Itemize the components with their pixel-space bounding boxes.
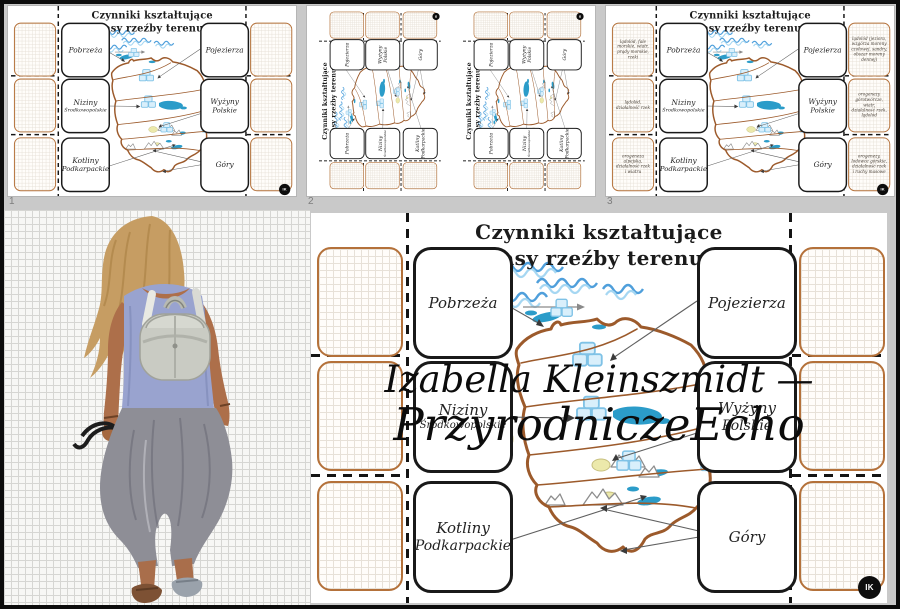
- label-text: Wyżyny: [718, 399, 776, 418]
- cut-line-horizontal: [792, 474, 887, 477]
- answer-text: orogenezy górotwórcze, wiatr, działalnoś…: [849, 90, 889, 120]
- answer-card-left-3: orogeneza alpejska, działalność rzek i w…: [317, 481, 403, 591]
- poland-border: [352, 64, 425, 126]
- label-text: Środkowopolskie: [384, 130, 388, 157]
- answer-card-left-1: lądolód, fale morskie, wiatr, prądy mors…: [330, 162, 364, 189]
- answer-card-left-1: lądolód, fale morskie, wiatr, prądy mors…: [474, 162, 508, 189]
- label-text: Pobrzeża: [488, 133, 494, 155]
- slide-thumbnail-1[interactable]: Czynniki kształtujące pasy rzeźby terenu…: [8, 6, 296, 196]
- poland-border: [112, 58, 210, 172]
- label-text: Pobrzeża: [69, 46, 103, 55]
- cut-line-horizontal: [247, 134, 294, 135]
- cut-line-horizontal: [311, 474, 406, 477]
- ik-logo-badge: IK: [858, 576, 881, 599]
- label-text: Polskie: [212, 106, 237, 115]
- answer-card-left-1: lądolód, fale morskie, wiatr, prądy mors…: [14, 23, 56, 77]
- label-text: Środkowopolskie: [64, 107, 106, 113]
- label-text: Pojezierza: [708, 294, 786, 313]
- label-text: Polskie: [722, 418, 772, 436]
- answer-card-right-2: orogenezy górotwórcze, wiatr, działalnoś…: [848, 79, 890, 133]
- label-text: Środkowopolskie: [528, 130, 532, 157]
- ik-logo-badge: IK: [279, 184, 290, 195]
- worksheet-title-line1: Czynniki kształtujące: [668, 9, 833, 22]
- label-box-gory: Góry: [547, 39, 582, 70]
- answer-text: lądolód, działalność rzek: [613, 98, 653, 112]
- label-text: Polskie: [527, 47, 532, 63]
- label-text: Pobrzeża: [344, 133, 350, 155]
- slide-number-1: 1: [9, 196, 15, 207]
- screenshot-frame: Czynniki kształtujące pasy rzeźby terenu…: [0, 0, 900, 609]
- label-box-wyzyny: Wyżyny Polskie: [798, 79, 847, 134]
- rotated-worksheet-copy-2: Czynniki kształtujące pasy rzeźby terenu…: [463, 11, 585, 191]
- worksheet-title-line1: Czynniki kształtujące: [465, 49, 473, 154]
- label-box-pobrzeza: Pobrzeża: [474, 128, 509, 159]
- answer-card-left-2: lądolód, działalność rzek: [317, 361, 403, 471]
- label-text: Środkowopolskie: [662, 107, 704, 113]
- label-box-pojezierza: Pojezierza: [200, 23, 249, 78]
- answer-card-left-2: lądolód, działalność rzek: [509, 162, 543, 189]
- sea-current-arrowhead: [739, 50, 743, 53]
- harem-pants: [100, 408, 232, 568]
- label-text: Kotliny: [72, 156, 98, 165]
- label-box-pobrzeza: Pobrzeża: [61, 23, 110, 78]
- ik-logo-text: IK: [435, 15, 438, 18]
- answer-text: orogeneza alpejska, działalność rzek i w…: [613, 152, 653, 177]
- woman-with-backpack-photo: [4, 210, 310, 605]
- answer-card-left-2: lądolód, działalność rzek: [14, 79, 56, 133]
- label-box-pojezierza: Pojezierza: [798, 23, 847, 78]
- label-text: Góry: [561, 49, 567, 60]
- lowland-icon: [497, 428, 617, 502]
- label-box-niziny: Niziny Środkowopolskie: [659, 79, 708, 134]
- poland-border: [496, 64, 569, 126]
- cut-line-horizontal: [401, 11, 402, 41]
- cut-line-horizontal: [11, 134, 58, 135]
- label-box-pobrzeza: Pobrzeża: [659, 23, 708, 78]
- sea-current-arrowhead: [577, 304, 585, 311]
- answer-card-left-1: lądolód, fale morskie, wiatr, prądy mors…: [317, 247, 403, 357]
- label-text: Kotliny: [436, 519, 490, 538]
- label-text: Pojezierza: [488, 43, 494, 67]
- label-box-kotliny: Kotliny Podkarpackie: [403, 128, 438, 159]
- cut-line-vertical-left: [463, 160, 585, 161]
- label-text: Podkarpackie: [660, 165, 707, 174]
- poland-border: [516, 319, 716, 552]
- cut-line-horizontal: [545, 161, 546, 191]
- answer-card-right-3: orogenezy, lodowce górskie, działalność …: [799, 481, 885, 591]
- answer-card-right-1: lądolód (jeziora, wzgórza moreny czołowe…: [799, 247, 885, 357]
- cut-line-horizontal: [609, 134, 656, 135]
- worksheet-page: Czynniki kształtujące pasy rzeźby terenu…: [319, 11, 441, 191]
- cut-line-vertical-left: [406, 213, 409, 603]
- label-box-kotliny: Kotliny Podkarpackie: [413, 481, 513, 593]
- label-box-wyzyny: Wyżyny Polskie: [200, 79, 249, 134]
- label-box-pobrzeza: Pobrzeża: [330, 128, 365, 159]
- label-box-wyzyny: Wyżyny Polskie: [365, 39, 400, 70]
- answer-card-left-2: lądolód, działalność rzek: [365, 162, 399, 189]
- cut-line-horizontal: [401, 161, 402, 191]
- label-box-kotliny: Kotliny Podkarpackie: [547, 128, 582, 159]
- label-box-pojezierza: Pojezierza: [330, 39, 365, 70]
- answer-card-right-2: orogenezy górotwórcze, wiatr, działalnoś…: [799, 361, 885, 471]
- label-box-kotliny: Kotliny Podkarpackie: [659, 137, 708, 192]
- label-text: Podkarpackie: [420, 128, 425, 158]
- cut-line-horizontal: [545, 11, 546, 41]
- author-photo-panel: [4, 210, 310, 605]
- slide-thumbnail-3[interactable]: Czynniki kształtujące pasy rzeźby terenu…: [606, 6, 894, 196]
- label-box-gory: Góry: [697, 481, 797, 593]
- label-box-niziny: Niziny Środkowopolskie: [365, 128, 400, 159]
- label-text: Pojezierza: [344, 43, 350, 67]
- ik-logo-badge: IK: [432, 13, 439, 20]
- ik-logo-badge: IK: [877, 184, 888, 195]
- label-box-pojezierza: Pojezierza: [474, 39, 509, 70]
- preview-background: Czynniki kształtujące pasy rzeźby terenu…: [4, 4, 896, 605]
- answer-card-right-2: orogenezy górotwórcze, wiatr, działalnoś…: [509, 12, 543, 39]
- worksheet-title-line1: Czynniki kształtujące: [321, 49, 329, 154]
- main-slide-preview[interactable]: Czynniki kształtujące pasy rzeźby terenu…: [311, 213, 887, 603]
- label-text: Niziny: [74, 98, 98, 107]
- answer-card-right-1: lądolód (jeziora, wzgórza moreny czołowe…: [848, 23, 890, 77]
- label-text: Wyżyny: [808, 97, 836, 106]
- label-box-wyzyny: Wyżyny Polskie: [697, 361, 797, 473]
- worksheet-title-line1: Czynniki kształtujące: [431, 219, 767, 245]
- slide-number-2: 2: [308, 196, 314, 207]
- label-box-gory: Góry: [403, 39, 438, 70]
- label-box-wyzyny: Wyżyny Polskie: [509, 39, 544, 70]
- slide-thumbnail-2[interactable]: Czynniki kształtujące pasy rzeźby terenu…: [307, 6, 595, 196]
- cut-line-horizontal: [845, 134, 892, 135]
- cut-line-vertical-left: [319, 160, 441, 161]
- ik-logo-badge: IK: [576, 13, 583, 20]
- rotated-worksheet-copy-1: Czynniki kształtujące pasy rzeźby terenu…: [319, 11, 441, 191]
- label-text: Pojezierza: [804, 46, 842, 55]
- label-text: Góry: [417, 49, 423, 60]
- label-text: Góry: [729, 528, 766, 547]
- lowland-icon: [102, 111, 161, 147]
- label-text: Pobrzeża: [429, 294, 498, 313]
- label-text: Polskie: [810, 106, 835, 115]
- answer-card-right-1: lądolód (jeziora, wzgórza moreny czołowe…: [250, 23, 292, 77]
- label-box-pojezierza: Pojezierza: [697, 247, 797, 359]
- answer-text: orogenezy, lodowce górskie, działalność …: [849, 152, 889, 177]
- label-text: Pobrzeża: [667, 46, 701, 55]
- label-box-niziny: Niziny Środkowopolskie: [61, 79, 110, 134]
- label-text: Niziny: [439, 401, 488, 420]
- feet-sandals: [132, 558, 203, 603]
- ik-logo-text: IK: [283, 187, 287, 191]
- answer-card-left-3: orogeneza alpejska, działalność rzek i w…: [14, 137, 56, 191]
- answer-card-left-1: lądolód, fale morskie, wiatr, prądy mors…: [612, 23, 654, 77]
- label-text: Góry: [216, 160, 234, 169]
- answer-card-right-2: orogenezy górotwórcze, wiatr, działalnoś…: [250, 79, 292, 133]
- label-text: Niziny: [672, 98, 696, 107]
- answer-card-left-3: orogeneza alpejska, działalność rzek i w…: [612, 137, 654, 191]
- worksheet-page: Czynniki kształtujące pasy rzeźby terenu…: [463, 11, 585, 191]
- slide-number-3: 3: [607, 196, 613, 207]
- cut-line-vertical-left: [58, 6, 59, 196]
- label-text: Podkarpackie: [415, 538, 511, 556]
- label-box-niziny: Niziny Środkowopolskie: [413, 361, 513, 473]
- sea-current-arrowhead: [491, 105, 493, 108]
- label-box-kotliny: Kotliny Podkarpackie: [61, 137, 110, 192]
- ik-logo-text: IK: [881, 187, 885, 191]
- answer-card-left-3: orogeneza alpejska, działalność rzek i w…: [547, 162, 581, 189]
- label-text: Kotliny: [670, 156, 696, 165]
- worksheet-page: Czynniki kształtujące pasy rzeźby terenu…: [311, 213, 887, 603]
- answer-card-right-2: orogenezy górotwórcze, wiatr, działalnoś…: [365, 12, 399, 39]
- label-text: Pojezierza: [206, 46, 244, 55]
- label-text: Polskie: [383, 47, 388, 63]
- ik-logo-text: IK: [865, 583, 874, 592]
- label-text: Podkarpackie: [564, 128, 569, 158]
- cut-line-vertical-left: [656, 6, 657, 196]
- label-box-gory: Góry: [798, 137, 847, 192]
- worksheet-title-line1: Czynniki kształtujące: [70, 9, 235, 22]
- sea-current-arrowhead: [347, 105, 349, 108]
- answer-card-right-1: lądolód (jeziora, wzgórza moreny czołowe…: [474, 12, 508, 39]
- answer-text: lądolód (jeziora, wzgórza moreny czołowe…: [849, 35, 889, 65]
- answer-text: lądolód, fale morskie, wiatr, prądy mors…: [613, 37, 653, 62]
- worksheet-page: Czynniki kształtujące pasy rzeźby terenu…: [11, 6, 293, 196]
- label-box-pobrzeza: Pobrzeża: [413, 247, 513, 359]
- lowland-icon: [700, 111, 759, 147]
- label-text: Wyżyny: [210, 97, 238, 106]
- label-box-gory: Góry: [200, 137, 249, 192]
- worksheet-page: Czynniki kształtujące pasy rzeźby terenu…: [609, 6, 891, 196]
- label-text: Środkowopolskie: [420, 420, 507, 433]
- label-text: Podkarpackie: [62, 165, 109, 174]
- answer-card-right-1: lądolód (jeziora, wzgórza moreny czołowe…: [330, 12, 364, 39]
- answer-card-left-3: orogeneza alpejska, działalność rzek i w…: [403, 162, 437, 189]
- poland-border: [710, 58, 808, 172]
- answer-card-left-2: lądolód, działalność rzek: [612, 79, 654, 133]
- ik-logo-text: IK: [579, 15, 582, 18]
- label-text: Góry: [814, 160, 832, 169]
- label-box-niziny: Niziny Środkowopolskie: [509, 128, 544, 159]
- sea-current-arrowhead: [141, 50, 145, 53]
